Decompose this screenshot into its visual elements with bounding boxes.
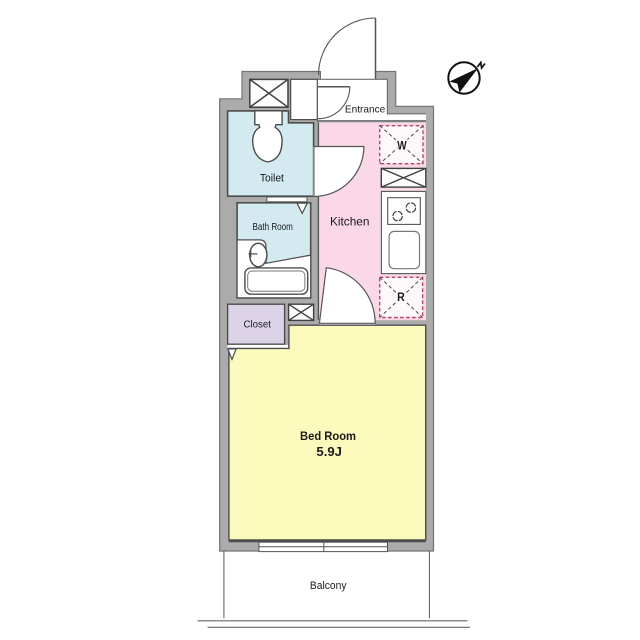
svg-text:Entrance: Entrance [345,105,386,116]
svg-text:Kitchen: Kitchen [330,215,369,229]
svg-text:5.9J: 5.9J [316,444,342,459]
svg-text:R: R [397,290,405,304]
svg-text:Bath Room: Bath Room [253,222,293,233]
svg-text:Bed Room: Bed Room [300,429,356,443]
svg-text:Toilet: Toilet [260,173,284,185]
svg-text:Balcony: Balcony [310,580,347,592]
svg-text:W: W [397,139,407,153]
svg-text:Closet: Closet [243,320,271,331]
